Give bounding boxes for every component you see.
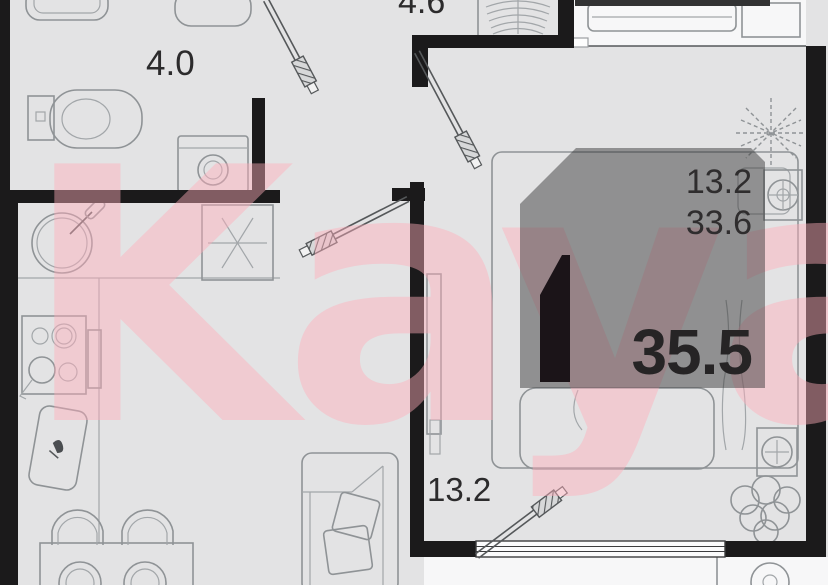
bedroom-door-icon bbox=[411, 49, 484, 170]
dining-table bbox=[40, 543, 193, 585]
cutting-board bbox=[27, 404, 88, 491]
kitchen-counter bbox=[18, 278, 280, 543]
kitchen-hob-symbol bbox=[202, 205, 273, 280]
bathroom-sink bbox=[26, 0, 108, 20]
kitchen-sink bbox=[32, 198, 106, 273]
developer-logo-icon bbox=[540, 255, 570, 382]
bedroom-wardrobe bbox=[427, 274, 441, 454]
kitchen-door-icon bbox=[298, 193, 411, 259]
balcony-cabinet-edge bbox=[575, 0, 770, 6]
bathroom-area-label: 4.0 bbox=[146, 44, 195, 84]
ceiling-fan-icon bbox=[764, 170, 802, 220]
toilet bbox=[28, 90, 142, 148]
balcony-top bbox=[573, 0, 806, 47]
washing-machine bbox=[178, 136, 248, 192]
badge-total-area: 35.5 bbox=[631, 320, 752, 384]
stove bbox=[20, 316, 86, 399]
bathroom-basin bbox=[175, 0, 251, 26]
badge-living-area: 33.6 bbox=[686, 203, 752, 244]
closet-hangers bbox=[478, 0, 560, 36]
floorplan-image: Kayan 13.2 33.6 35.5 4.0 4.6 13.2 bbox=[0, 0, 828, 585]
plant-bush-icon bbox=[731, 476, 800, 544]
window bbox=[476, 541, 725, 557]
hall-area-label: 4.6 bbox=[398, 0, 445, 22]
badge-room-area: 13.2 bbox=[686, 162, 752, 203]
sofa-pillows bbox=[323, 492, 380, 575]
area-badge: 13.2 33.6 35.5 bbox=[520, 148, 765, 388]
bedroom-area-label: 13.2 bbox=[427, 471, 491, 509]
sofa bbox=[302, 453, 398, 585]
balcony-bottom bbox=[424, 557, 828, 585]
dining-chairs bbox=[52, 510, 173, 545]
bathroom-door-icon bbox=[260, 0, 320, 95]
